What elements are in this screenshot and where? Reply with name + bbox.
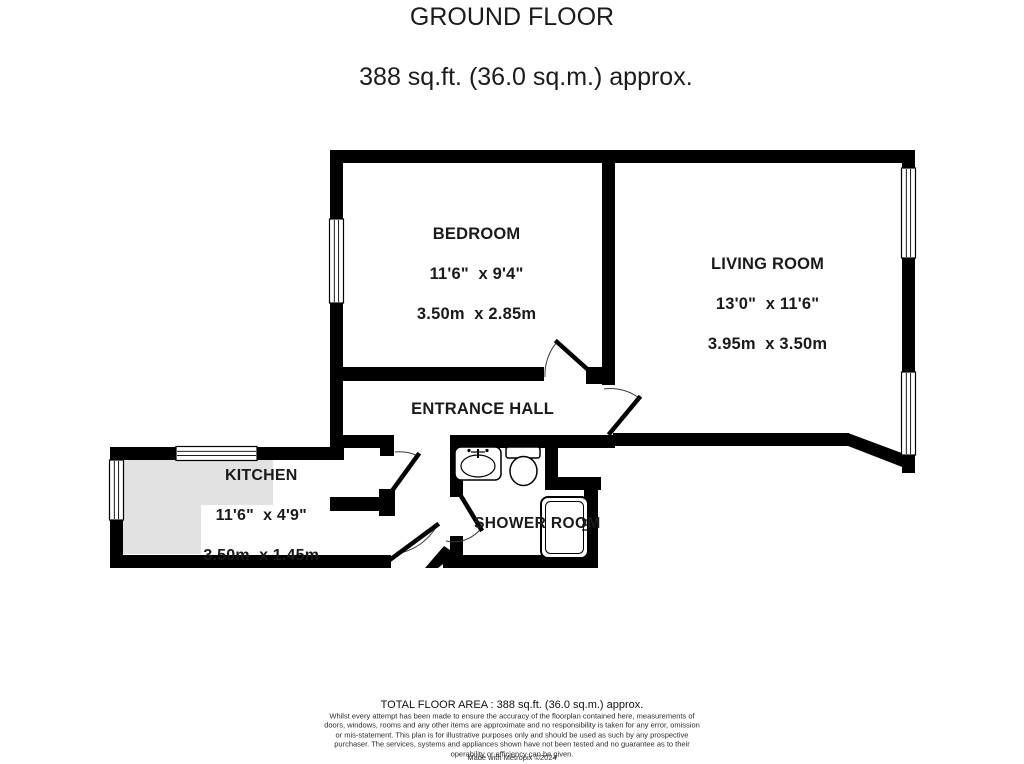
- window-icon: [330, 219, 344, 303]
- floorplan: GROUND FLOOR 388 sq.ft. (36.0 sq.m.) app…: [0, 0, 1024, 764]
- door-swing-icon: [604, 389, 639, 398]
- shower-room-label: SHOWER ROOM: [455, 494, 601, 554]
- window-icon: [110, 460, 124, 520]
- room-dim-metric: 3.50m x 1.45m: [203, 547, 319, 564]
- entrance-hall-label: ENTRANCE HALL: [392, 379, 554, 439]
- room-name: KITCHEN: [225, 467, 298, 484]
- window-icon: [902, 372, 916, 455]
- room-dim-metric: 3.50m x 2.85m: [417, 305, 536, 323]
- room-dim-metric: 3.95m x 3.50m: [708, 335, 827, 353]
- window-icon: [902, 168, 916, 258]
- kitchen-label: KITCHEN 11'6" x 4'9" 3.50m x 1.45m: [185, 446, 319, 586]
- door-swing-icon: [545, 342, 557, 377]
- room-dim-imperial: 11'6" x 9'4": [430, 265, 524, 283]
- floor-area-subtitle: 388 sq.ft. (36.0 sq.m.) approx.: [359, 63, 693, 91]
- door-leaf: [389, 455, 418, 495]
- room-name: LIVING ROOM: [711, 255, 824, 273]
- room-name: SHOWER ROOM: [474, 515, 601, 532]
- door-swing-icon: [395, 452, 418, 456]
- credit-line: Made with Metropix ©2024: [467, 748, 556, 764]
- sink-icon: [455, 447, 501, 480]
- door-leaf: [557, 342, 595, 376]
- door-leaf: [391, 525, 437, 559]
- room-name: BEDROOM: [433, 225, 521, 243]
- living-room-label: LIVING ROOM 13'0" x 11'6" 3.95m x 3.50m: [689, 234, 827, 374]
- page-title: GROUND FLOOR 388 sq.ft. (36.0 sq.m.) app…: [331, 2, 692, 92]
- door-leaf: [610, 398, 639, 433]
- bedroom-label: BEDROOM 11'6" x 9'4" 3.50m x 2.85m: [398, 204, 536, 344]
- room-dim-imperial: 11'6" x 4'9": [216, 507, 307, 524]
- floor-name: GROUND FLOOR: [410, 3, 614, 31]
- room-dim-imperial: 13'0" x 11'6": [716, 295, 819, 313]
- room-name: ENTRANCE HALL: [411, 400, 554, 418]
- toilet-icon: [506, 447, 540, 486]
